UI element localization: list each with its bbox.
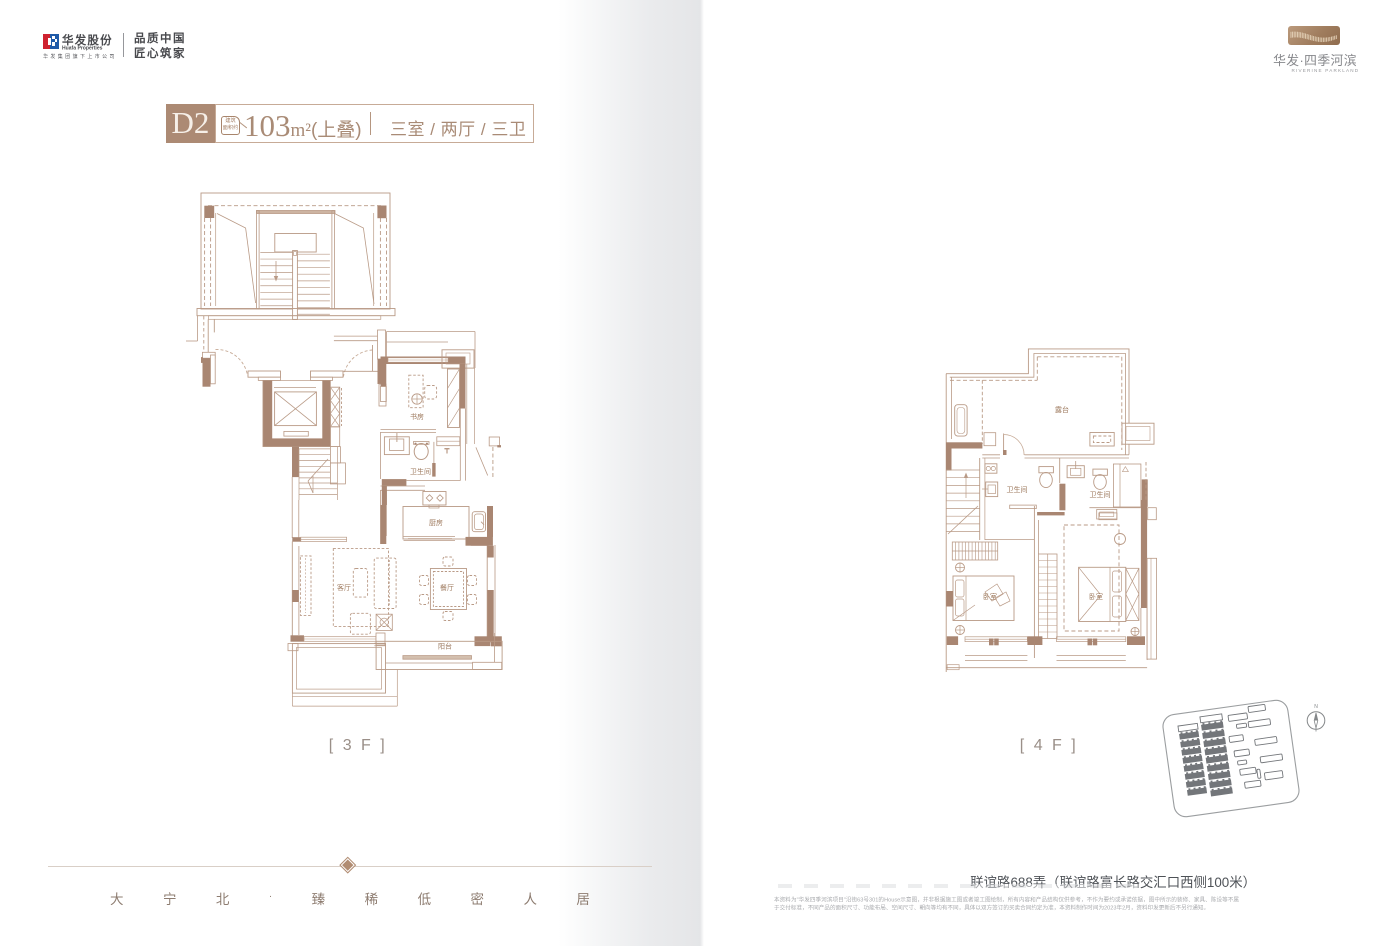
svg-text:[ 3 F ]: [ 3 F ]: [329, 737, 387, 754]
svg-text:N: N: [1314, 704, 1318, 710]
svg-text:客厅: 客厅: [337, 583, 351, 592]
svg-text:卫生间: 卫生间: [1007, 485, 1028, 494]
svg-text:卧室: 卧室: [1089, 592, 1103, 601]
svg-text:卫生间: 卫生间: [1090, 490, 1111, 499]
svg-text:卧室: 卧室: [983, 592, 997, 601]
svg-text:卫生间: 卫生间: [410, 467, 431, 476]
svg-text:阳台: 阳台: [438, 642, 452, 651]
svg-text:厨房: 厨房: [429, 518, 443, 527]
svg-text:[ 4 F ]: [ 4 F ]: [1020, 737, 1078, 754]
svg-text:餐厅: 餐厅: [440, 583, 454, 592]
svg-text:露台: 露台: [1055, 405, 1069, 414]
svg-text:书房: 书房: [410, 412, 424, 421]
